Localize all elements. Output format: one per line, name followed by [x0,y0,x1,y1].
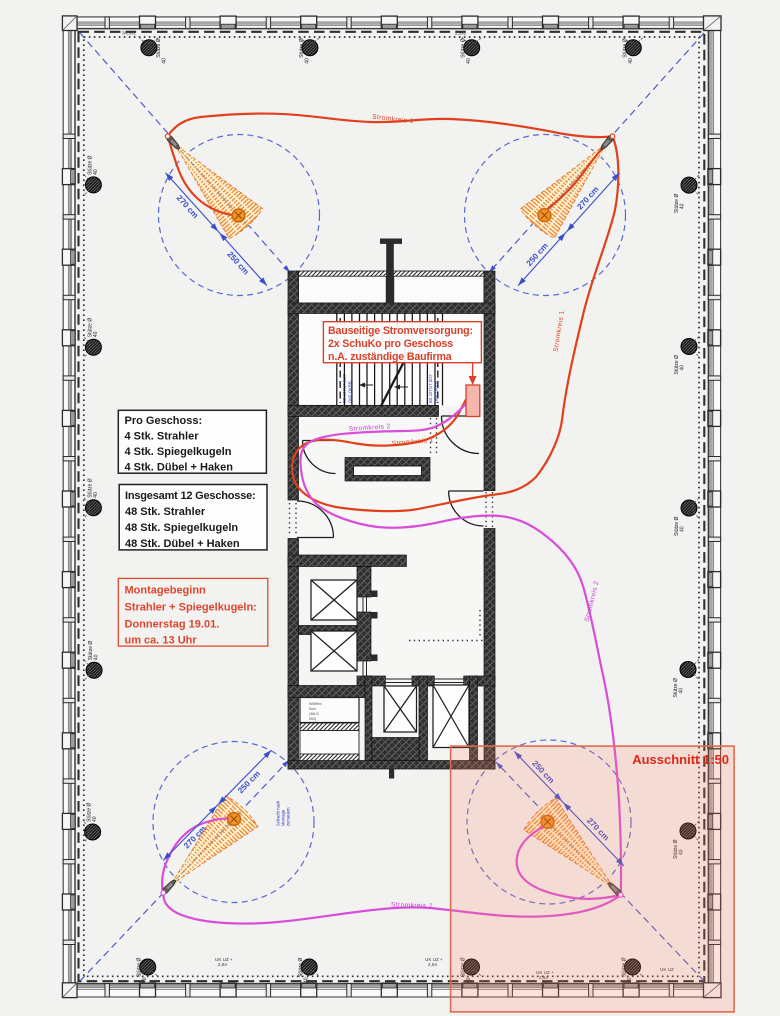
svg-text:um ca. 13 Uhr: um ca. 13 Uhr [125,635,198,647]
svg-text:34,5x1: 34,5x1 [122,31,136,36]
svg-text:Stütze Ø: Stütze Ø [137,957,143,977]
svg-text:2,5x1: 2,5x1 [455,31,467,36]
svg-text:48 Stk. Strahler: 48 Stk. Strahler [125,506,206,518]
svg-text:2x SchuKo pro Geschoss: 2x SchuKo pro Geschoss [328,338,453,350]
svg-text:Stütze Ø: Stütze Ø [673,678,679,698]
svg-text:Ausschnitt 1:50: Ausschnitt 1:50 [632,752,729,767]
svg-text:Strahler + Spiegelkugeln:: Strahler + Spiegelkugeln: [125,602,257,614]
svg-text:40: 40 [680,203,686,209]
svg-text:48 Stk. Spiegelkugeln: 48 Stk. Spiegelkugeln [125,522,238,534]
svg-text:4 Stk. Strahler: 4 Stk. Strahler [125,431,200,443]
svg-text:40: 40 [304,977,310,983]
svg-text:Insgesamt 12 Geschosse:: Insgesamt 12 Geschosse: [125,490,256,502]
svg-text:40: 40 [304,58,310,64]
svg-text:Bauseitige Stromversorgung:: Bauseitige Stromversorgung: [328,325,473,337]
svg-text:OKF OKRB: OKF OKRB [434,381,439,403]
svg-text:4 Stk. Dübel + Haken: 4 Stk. Dübel + Haken [125,462,234,474]
svg-text:40: 40 [93,331,99,337]
svg-text:Stütze Ø: Stütze Ø [674,516,680,536]
svg-text:Stromkreis 2: Stromkreis 2 [391,902,433,910]
svg-text:40: 40 [93,492,99,498]
svg-text:BS 107/17,5/27: BS 107/17,5/27 [428,373,433,403]
svg-text:zumauern: zumauern [286,807,291,826]
svg-text:553): 553) [309,717,316,721]
svg-text:40: 40 [93,169,99,175]
svg-text:48 Stk. Dübel + Haken: 48 Stk. Dübel + Haken [125,538,240,550]
svg-text:Pro Geschoss:: Pro Geschoss: [125,415,203,427]
svg-text:Stütze Ø: Stütze Ø [156,38,162,58]
svg-text:n.A. zuständige Baufirma: n.A. zuständige Baufirma [328,351,452,363]
svg-text:BS 107/17,5/27: BS 107/17,5/27 [342,373,347,403]
svg-text:40: 40 [94,654,100,660]
svg-text:40: 40 [466,58,472,64]
svg-text:40: 40 [92,816,98,822]
svg-text:Stütze Ø: Stütze Ø [674,194,680,214]
svg-text:Stütze Ø: Stütze Ø [298,957,304,977]
svg-text:Donnerstag 19.01.: Donnerstag 19.01. [125,619,220,631]
svg-text:OKF OKRB: OKF OKRB [348,381,353,403]
svg-text:40: 40 [628,58,634,64]
svg-text:4 Stk. Spiegelkugeln: 4 Stk. Spiegelkugeln [125,446,232,458]
svg-text:Montagebeginn: Montagebeginn [125,585,207,597]
svg-text:Stütze Ø: Stütze Ø [674,355,680,375]
svg-text:40: 40 [161,58,167,64]
svg-text:(36LG: (36LG [309,712,319,716]
svg-text:2,64: 2,64 [218,962,227,967]
svg-text:2,64: 2,64 [428,962,437,967]
svg-text:5um: 5um [309,707,316,711]
svg-text:40: 40 [680,526,686,532]
svg-text:40: 40 [142,977,148,983]
svg-text:40: 40 [680,365,686,371]
svg-text:Wölf​flex: Wölf​flex [309,702,322,706]
svg-text:40: 40 [679,688,685,694]
